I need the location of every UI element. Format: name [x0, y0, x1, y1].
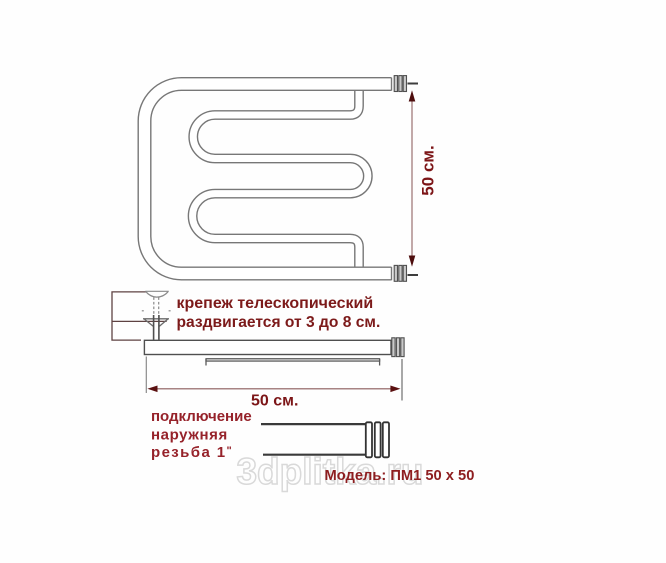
svg-text:Модель: ПМ1 50 x 50: Модель: ПМ1 50 x 50	[325, 468, 475, 484]
svg-text:подключение: подключение	[151, 408, 252, 425]
svg-text:50 см.: 50 см.	[419, 145, 438, 195]
svg-text:наружняя: наружняя	[151, 427, 228, 444]
svg-text:раздвигается от 3 до 8 см.: раздвигается от 3 до 8 см.	[177, 314, 381, 331]
svg-text:50 см.: 50 см.	[251, 393, 298, 410]
svg-text:крепеж телескопический: крепеж телескопический	[177, 295, 374, 312]
svg-text:резьба 1": резьба 1"	[151, 444, 233, 461]
